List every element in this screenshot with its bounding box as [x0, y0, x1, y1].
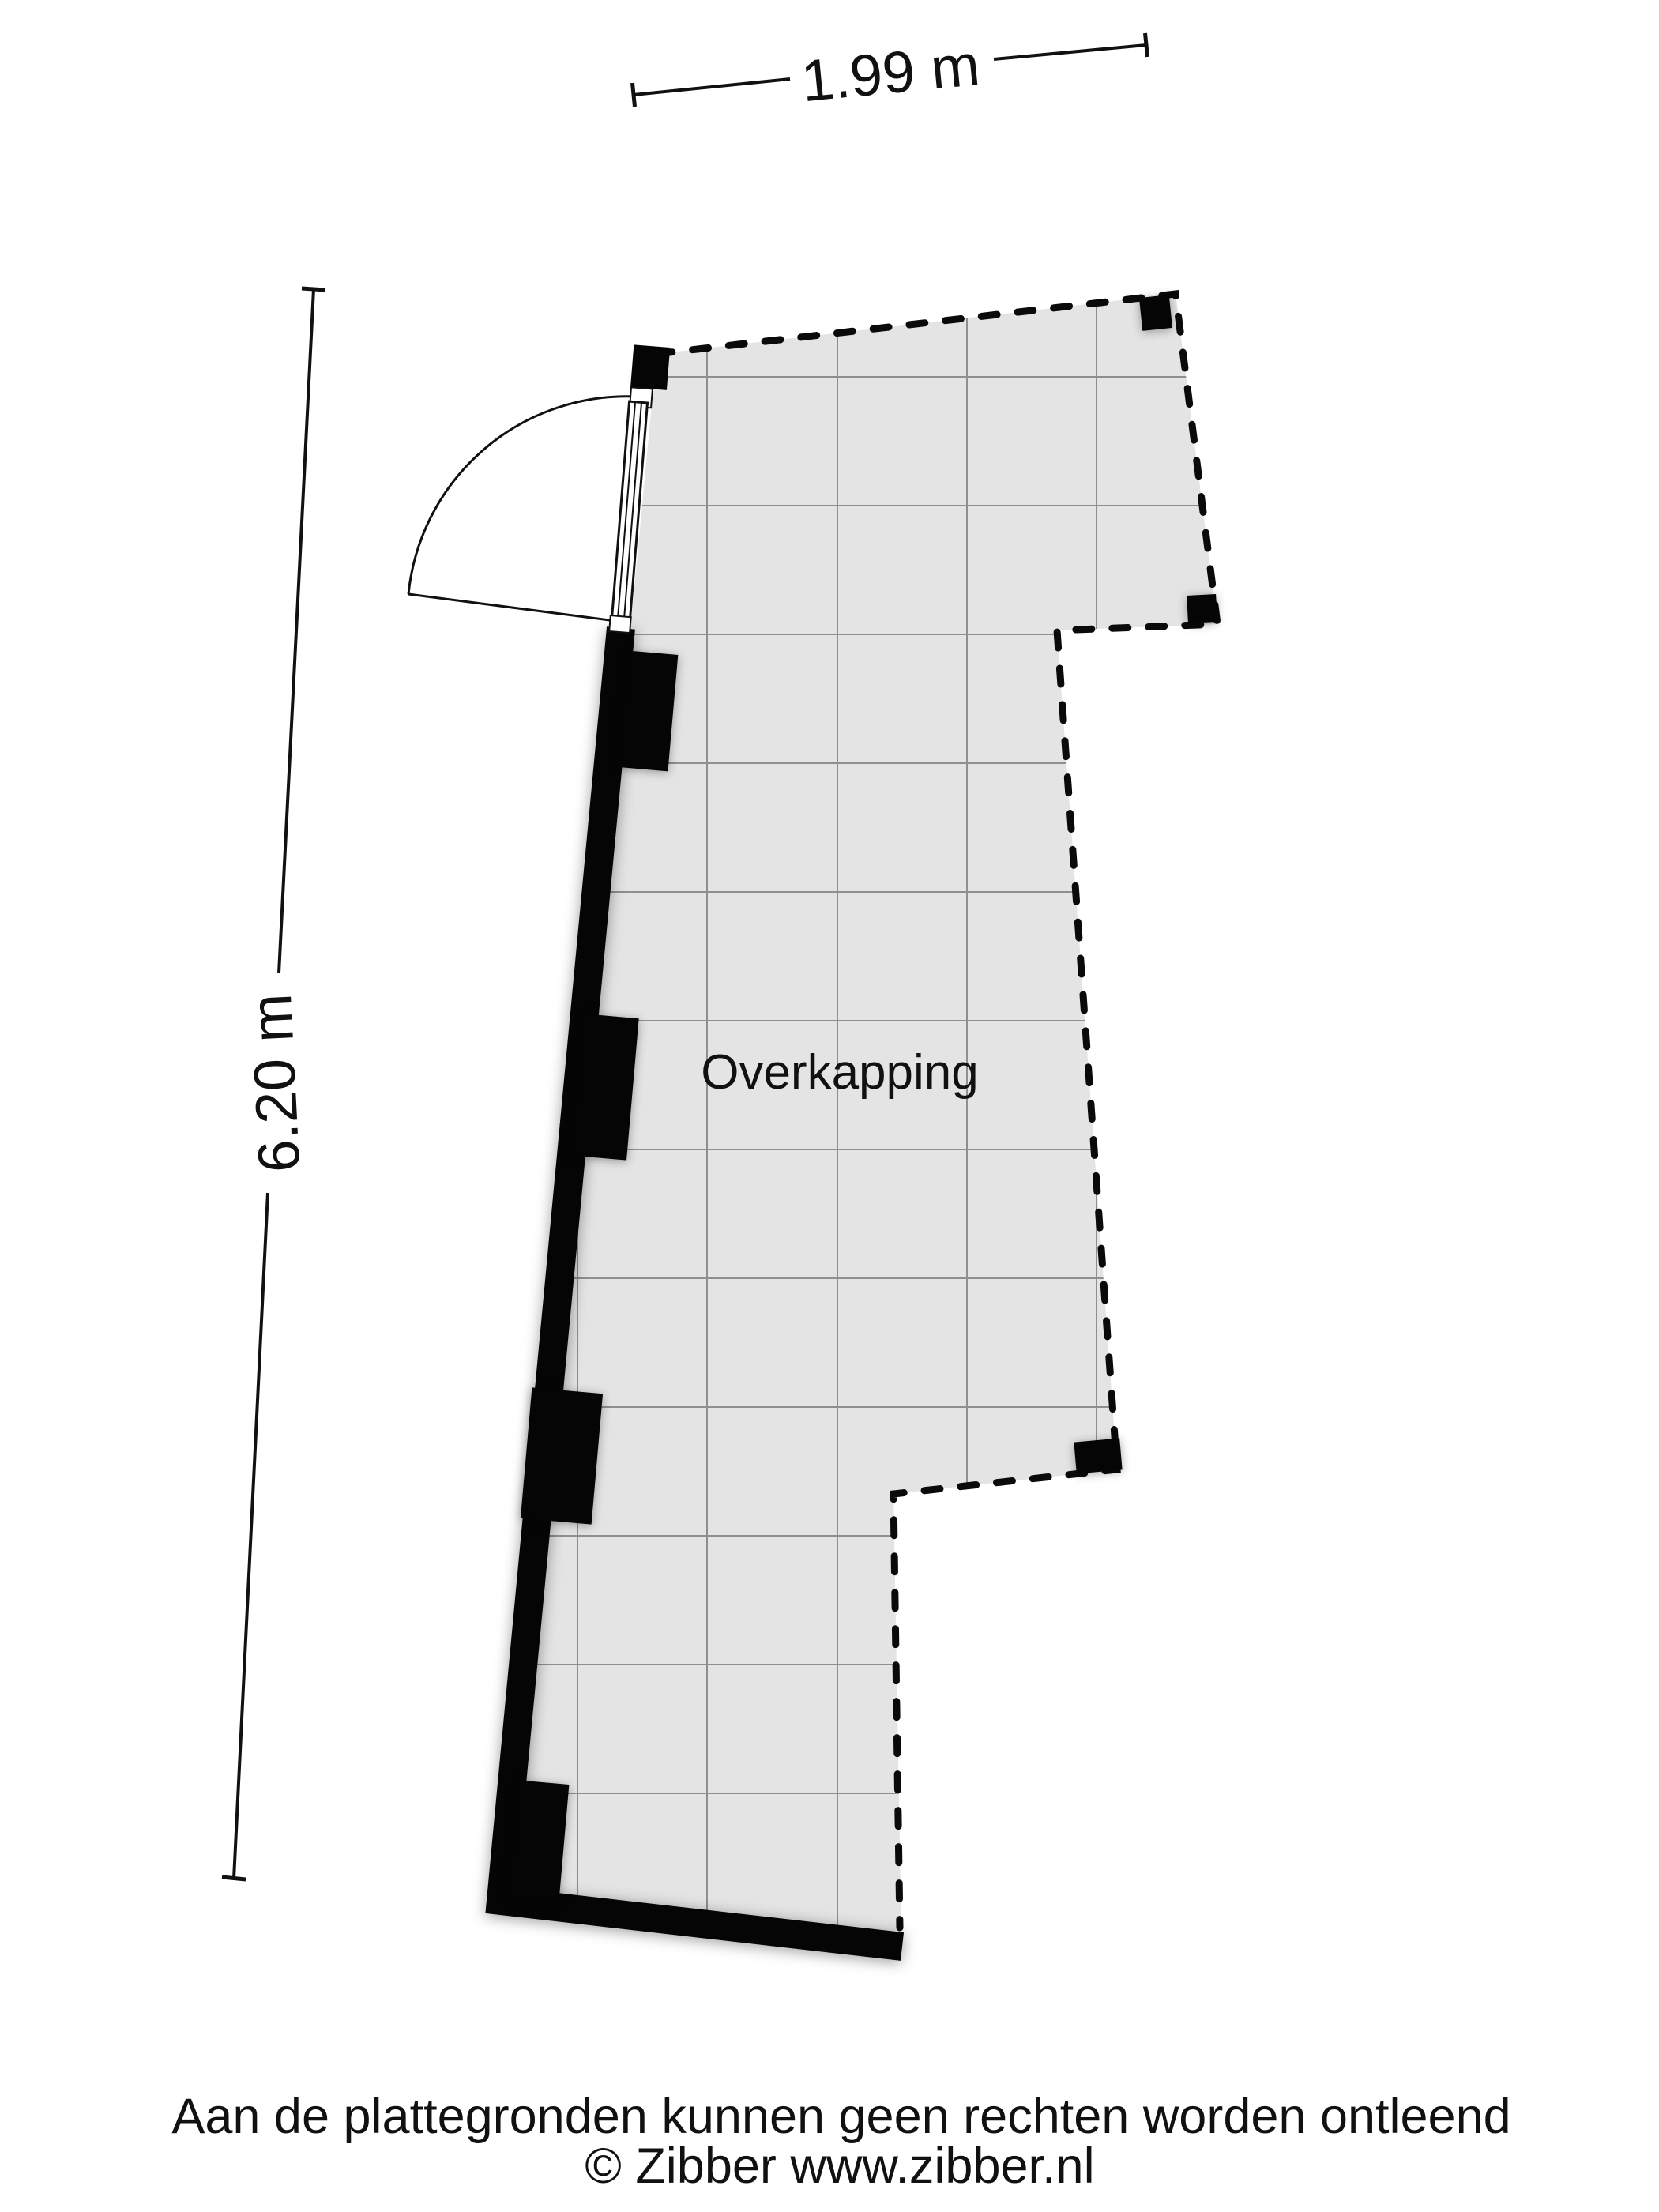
- door-lintel-block: [630, 344, 670, 390]
- floorplan-page: 1.99 m 6.20 m Overkapping Aan de platteg…: [0, 0, 1659, 2212]
- pillar-right-step-lower: [1074, 1439, 1122, 1474]
- dimension-height-label: 6.20 m: [238, 992, 312, 1174]
- door-frame-bottom: [609, 615, 631, 633]
- pillar-left-4: [510, 1781, 570, 1903]
- pillar-left-3: [521, 1387, 603, 1524]
- door-arc: [408, 397, 636, 594]
- floorplan-canvas: 1.99 m 6.20 m Overkapping Aan de platteg…: [0, 0, 1659, 2212]
- door-leaf-open-line: [408, 594, 615, 621]
- disclaimer-text: Aan de plattegronden kunnen geen rechten…: [171, 2089, 1510, 2144]
- pillar-left-1: [619, 651, 679, 772]
- pillar-right-step-upper: [1187, 594, 1217, 623]
- dimension-width-label: 1.99 m: [799, 32, 983, 114]
- pillar-northeast: [1139, 295, 1172, 331]
- room-label: Overkapping: [701, 1045, 979, 1100]
- copyright-text: © Zibber www.zibber.nl: [585, 2139, 1094, 2194]
- door-swing: [408, 397, 636, 621]
